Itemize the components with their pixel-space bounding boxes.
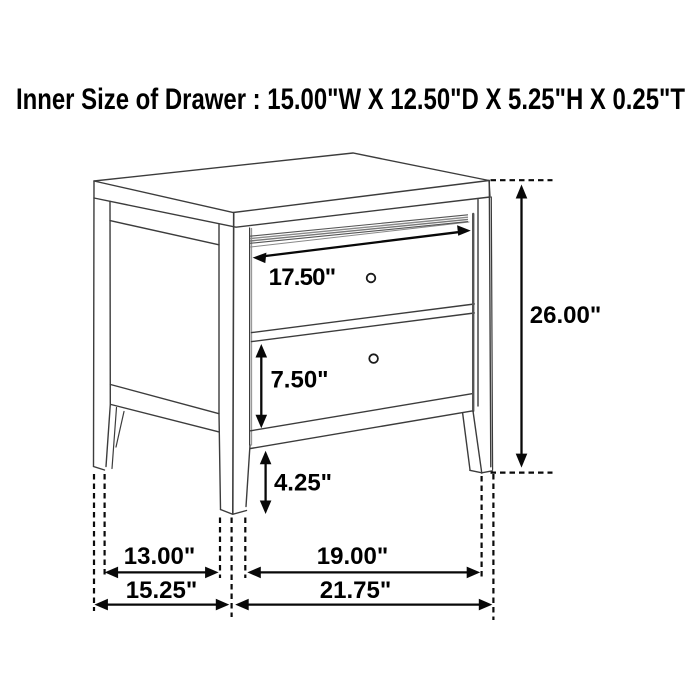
svg-text:19.00": 19.00" xyxy=(317,543,388,570)
svg-text:4.25": 4.25" xyxy=(274,470,332,497)
svg-text:17.50": 17.50" xyxy=(269,264,336,291)
svg-text:21.75": 21.75" xyxy=(320,577,391,604)
svg-text:15.25": 15.25" xyxy=(126,577,197,604)
svg-text:7.50": 7.50" xyxy=(270,367,328,394)
svg-text:Inner Size of Drawer : 15.00"W: Inner Size of Drawer : 15.00"W X 12.50"D… xyxy=(16,83,685,116)
svg-text:13.00": 13.00" xyxy=(124,543,195,570)
svg-text:26.00": 26.00" xyxy=(530,302,601,329)
